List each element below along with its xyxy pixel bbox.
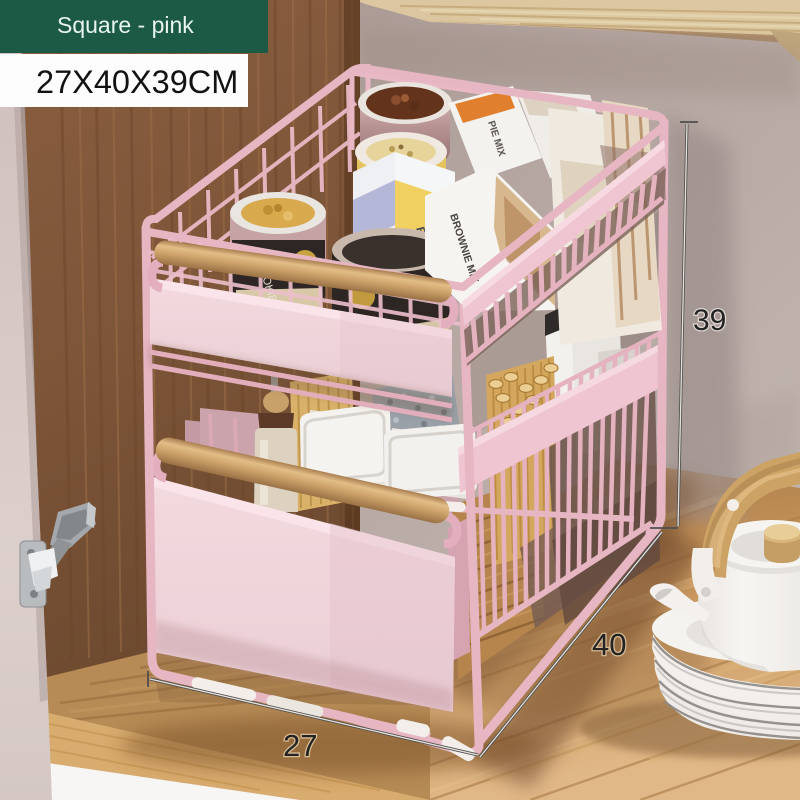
svg-text:27: 27 xyxy=(283,728,317,763)
svg-text:27X40X39CM: 27X40X39CM xyxy=(36,64,238,100)
svg-text:40: 40 xyxy=(592,627,626,662)
svg-text:39: 39 xyxy=(693,304,726,337)
svg-text:Square - pink: Square - pink xyxy=(57,12,194,38)
